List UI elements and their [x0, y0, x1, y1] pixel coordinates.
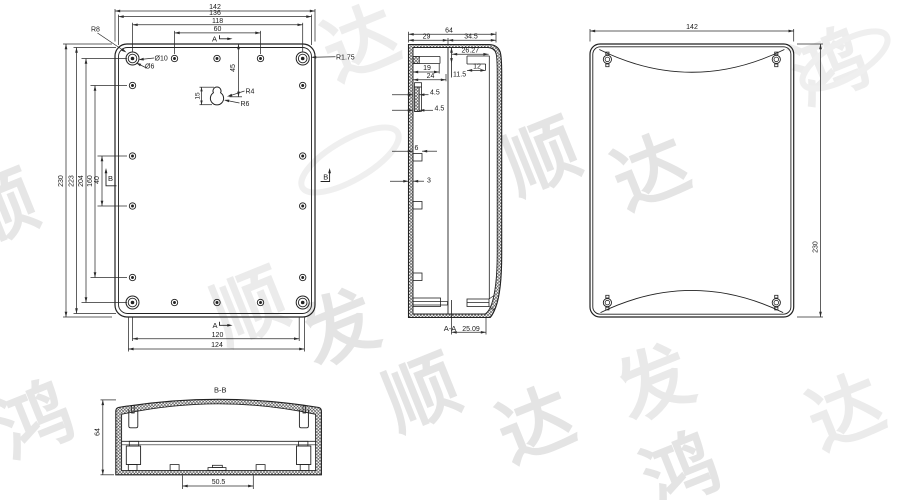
svg-text:R6: R6	[241, 101, 250, 108]
svg-text:A: A	[212, 35, 217, 44]
svg-text:223: 223	[69, 175, 76, 187]
svg-text:11.5: 11.5	[453, 72, 466, 79]
svg-text:204: 204	[78, 175, 85, 187]
svg-text:6: 6	[415, 145, 419, 152]
svg-text:12: 12	[473, 64, 481, 71]
svg-text:B: B	[323, 173, 328, 182]
svg-text:25.09: 25.09	[462, 326, 480, 333]
svg-text:64: 64	[94, 428, 101, 436]
svg-text:230: 230	[58, 175, 65, 187]
svg-text:40: 40	[94, 176, 101, 184]
svg-text:60: 60	[214, 26, 222, 33]
svg-text:3: 3	[427, 178, 431, 185]
svg-text:Ø6: Ø6	[145, 64, 154, 71]
svg-text:230: 230	[813, 241, 820, 253]
svg-text:26.27: 26.27	[462, 47, 480, 54]
svg-text:B-B: B-B	[214, 386, 227, 395]
svg-text:29: 29	[423, 34, 431, 41]
svg-text:A: A	[212, 321, 217, 330]
svg-text:19: 19	[423, 65, 431, 72]
svg-text:34.5: 34.5	[464, 34, 478, 41]
svg-text:A-A: A-A	[444, 324, 457, 333]
svg-text:15: 15	[194, 92, 201, 100]
svg-text:45: 45	[230, 64, 237, 72]
svg-text:50.5: 50.5	[212, 479, 226, 486]
svg-text:124: 124	[211, 342, 223, 349]
svg-text:R8: R8	[91, 27, 100, 34]
svg-text:R1.75: R1.75	[336, 55, 355, 62]
svg-text:142: 142	[686, 24, 698, 31]
svg-text:136: 136	[209, 10, 221, 17]
svg-text:64: 64	[445, 28, 453, 35]
svg-text:24: 24	[427, 73, 435, 80]
svg-text:Ø10: Ø10	[155, 56, 168, 63]
svg-text:4.5: 4.5	[430, 90, 440, 97]
svg-text:B: B	[108, 174, 113, 183]
svg-text:R4: R4	[246, 89, 255, 96]
svg-text:4.5: 4.5	[435, 105, 445, 112]
svg-text:118: 118	[212, 18, 223, 25]
svg-text:120: 120	[212, 332, 224, 339]
svg-text:160: 160	[87, 175, 94, 187]
